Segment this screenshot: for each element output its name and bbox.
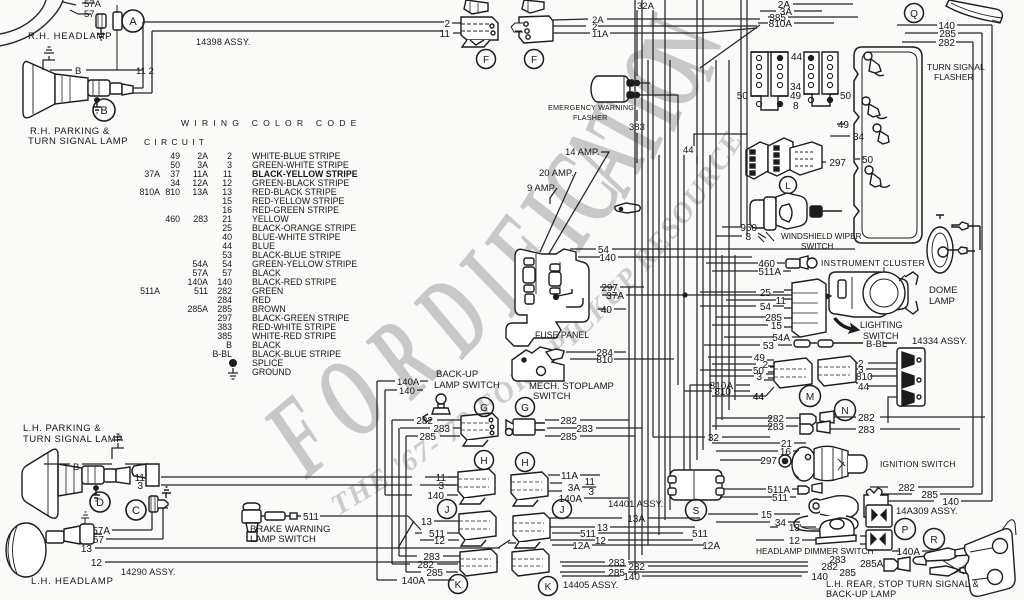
svg-text:297: 297 [760, 456, 777, 467]
svg-text:8: 8 [793, 101, 799, 112]
svg-text:49: 49 [838, 120, 850, 131]
svg-text:44: 44 [683, 145, 694, 156]
svg-text:BACK-UP: BACK-UP [436, 369, 478, 380]
svg-text:285A: 285A [860, 559, 884, 570]
svg-text:F: F [483, 55, 489, 66]
svg-text:44: 44 [791, 52, 803, 63]
svg-text:14334 ASSY.: 14334 ASSY. [912, 336, 967, 347]
svg-text:12: 12 [595, 536, 607, 547]
svg-text:F: F [531, 55, 537, 66]
svg-text:TURN SIGNAL LAMP: TURN SIGNAL LAMP [23, 434, 123, 445]
svg-text:285: 285 [426, 568, 443, 579]
svg-text:L.H. REAR, STOP TURN SIGNAL &: L.H. REAR, STOP TURN SIGNAL & [826, 579, 979, 589]
svg-text:FUSE PANEL: FUSE PANEL [535, 330, 589, 340]
svg-text:140: 140 [399, 386, 415, 397]
svg-text:44: 44 [753, 392, 765, 403]
svg-text:53: 53 [763, 341, 775, 352]
svg-text:54: 54 [760, 302, 772, 313]
svg-text:LAMP SWITCH: LAMP SWITCH [434, 380, 500, 391]
svg-text:12: 12 [434, 536, 446, 547]
svg-text:H: H [480, 456, 487, 467]
svg-text:13: 13 [597, 523, 609, 534]
svg-text:P: P [902, 525, 909, 536]
svg-text:FLASHER: FLASHER [934, 72, 974, 82]
svg-text:LAMP SWITCH: LAMP SWITCH [250, 534, 316, 545]
svg-text:140A: 140A [402, 576, 426, 587]
svg-text:12: 12 [91, 558, 103, 569]
svg-text:G: G [521, 403, 529, 414]
svg-text:14290 ASSY.: 14290 ASSY. [121, 567, 176, 577]
svg-text:3A: 3A [568, 483, 581, 494]
svg-text:15: 15 [771, 321, 783, 332]
svg-text:K: K [455, 580, 462, 591]
svg-text:HEADLAMP DIMMER SWITCH: HEADLAMP DIMMER SWITCH [756, 546, 874, 556]
svg-text:282: 282 [560, 416, 577, 427]
svg-text:15: 15 [761, 510, 773, 521]
svg-text:282: 282 [858, 413, 875, 424]
svg-text:34: 34 [853, 132, 865, 143]
svg-text:511: 511 [303, 512, 319, 523]
svg-text:8: 8 [745, 232, 751, 243]
svg-text:11A: 11A [592, 29, 609, 40]
svg-text:C: C [132, 505, 140, 517]
svg-text:50: 50 [840, 91, 852, 102]
svg-text:3: 3 [588, 487, 594, 498]
svg-text:11: 11 [776, 296, 787, 307]
svg-text:9 AMP.: 9 AMP. [527, 183, 556, 194]
svg-text:TURN SIGNAL LAMP: TURN SIGNAL LAMP [28, 136, 128, 147]
svg-text:L: L [785, 181, 790, 192]
svg-text:11: 11 [440, 29, 451, 40]
svg-text:810A: 810A [769, 19, 793, 30]
svg-text:511: 511 [772, 493, 788, 504]
svg-text:511: 511 [692, 529, 708, 540]
svg-text:283: 283 [576, 424, 593, 435]
svg-text:13: 13 [81, 544, 93, 555]
svg-text:L.H. PARKING &: L.H. PARKING & [23, 423, 101, 434]
svg-text:WINDSHIELD WIPER: WINDSHIELD WIPER [781, 232, 862, 241]
svg-text:TURN SIGNAL: TURN SIGNAL [927, 62, 985, 72]
svg-text:20 AMP.: 20 AMP. [539, 168, 574, 179]
svg-text:BACK-UP LAMP: BACK-UP LAMP [826, 589, 896, 599]
svg-text:CIRCUIT: CIRCUIT [144, 137, 208, 147]
svg-text:285: 285 [419, 432, 436, 443]
svg-text:GROUND: GROUND [252, 367, 291, 377]
svg-text:L.H. HEADLAMP: L.H. HEADLAMP [31, 576, 114, 587]
svg-text:H: H [521, 458, 528, 469]
svg-text:3: 3 [137, 481, 143, 492]
svg-text:511A: 511A [758, 267, 781, 278]
svg-text:3: 3 [756, 372, 762, 383]
svg-text:B: B [73, 462, 79, 473]
svg-text:44: 44 [858, 382, 870, 393]
svg-text:R.H. HEADLAMP: R.H. HEADLAMP [28, 31, 112, 42]
svg-text:34: 34 [775, 518, 787, 529]
svg-text:EMERGENCY WARNING: EMERGENCY WARNING [548, 103, 634, 112]
svg-text:54A: 54A [772, 333, 790, 344]
svg-text:B: B [75, 66, 81, 77]
svg-text:J: J [445, 505, 450, 516]
svg-text:Q: Q [910, 9, 918, 20]
svg-text:12A: 12A [702, 541, 720, 552]
svg-text:283: 283 [767, 422, 784, 433]
svg-text:14398 ASSY.: 14398 ASSY. [196, 37, 251, 47]
svg-text:283: 283 [858, 425, 875, 436]
svg-text:57: 57 [84, 9, 95, 20]
svg-text:IGNITION SWITCH: IGNITION SWITCH [880, 459, 956, 469]
svg-text:INSTRUMENT CLUSTER: INSTRUMENT CLUSTER [821, 258, 925, 268]
svg-text:13A: 13A [627, 514, 645, 525]
svg-text:LIGHTING: LIGHTING [860, 320, 903, 330]
svg-text:14405 ASSY.: 14405 ASSY. [563, 580, 618, 591]
svg-text:G: G [480, 403, 488, 414]
svg-text:32A: 32A [637, 1, 655, 12]
svg-text:DOME: DOME [929, 285, 958, 296]
svg-text:285: 285 [560, 432, 577, 443]
svg-text:K: K [545, 582, 552, 593]
svg-text:13: 13 [421, 517, 433, 528]
svg-text:25: 25 [760, 288, 772, 299]
svg-text:40: 40 [601, 305, 613, 316]
svg-text:B: B [100, 105, 107, 117]
svg-text:J: J [560, 505, 565, 516]
svg-text:140: 140 [623, 572, 640, 583]
svg-text:810: 810 [596, 355, 613, 366]
svg-text:FLASHER: FLASHER [573, 113, 608, 122]
svg-text:297: 297 [829, 158, 846, 169]
svg-text:R: R [930, 535, 937, 546]
svg-text:M: M [806, 392, 814, 403]
svg-text:SWITCH: SWITCH [533, 391, 571, 402]
svg-text:S: S [693, 506, 700, 517]
svg-text:14A309 ASSY.: 14A309 ASSY. [896, 506, 958, 517]
svg-text:11 2: 11 2 [136, 66, 154, 77]
svg-text:282: 282 [898, 483, 915, 494]
svg-text:D: D [96, 497, 104, 509]
svg-text:285: 285 [839, 568, 856, 579]
svg-text:14401 ASSY.: 14401 ASSY. [608, 499, 663, 510]
svg-text:14 AMP.: 14 AMP. [565, 147, 600, 158]
svg-text:13: 13 [789, 523, 801, 534]
svg-text:N: N [841, 406, 848, 417]
svg-text:32: 32 [708, 433, 720, 444]
svg-text:12A: 12A [572, 541, 590, 552]
svg-text:285: 285 [921, 490, 938, 501]
svg-text:37A: 37A [606, 291, 624, 302]
svg-text:11A: 11A [561, 471, 578, 482]
svg-text:A: A [129, 16, 137, 28]
svg-text:LAMP: LAMP [929, 296, 955, 307]
svg-text:B-BL: B-BL [866, 339, 887, 350]
svg-text:282: 282 [416, 416, 433, 427]
svg-text:50: 50 [862, 155, 874, 166]
svg-text:WIRING COLOR CODE: WIRING COLOR CODE [181, 118, 362, 128]
svg-text:140: 140 [599, 253, 616, 264]
svg-text:SWITCH: SWITCH [801, 242, 833, 251]
svg-text:282: 282 [938, 38, 955, 49]
